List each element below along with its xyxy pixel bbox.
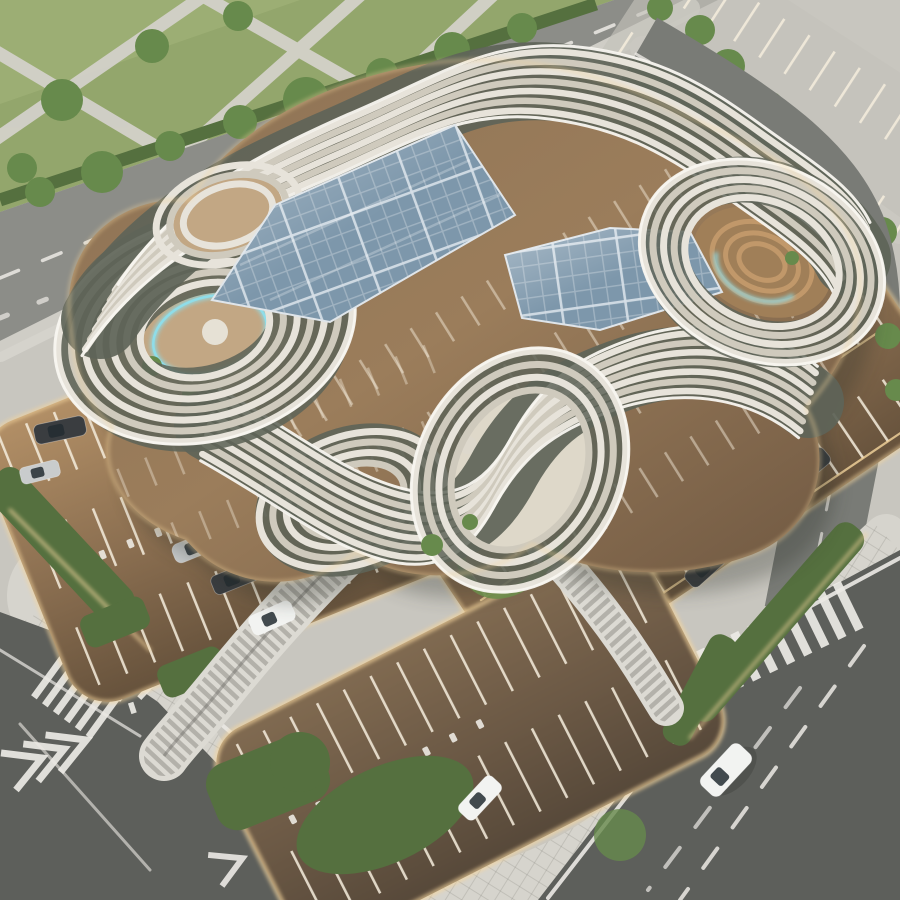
tree <box>875 323 900 349</box>
planting-tuft <box>421 534 443 556</box>
scene-canvas <box>0 0 900 900</box>
central-trunk-column <box>202 319 228 345</box>
planting-tuft <box>785 251 799 265</box>
shrub <box>594 809 646 861</box>
aerial-render <box>0 0 900 900</box>
planting-tuft <box>462 514 478 530</box>
